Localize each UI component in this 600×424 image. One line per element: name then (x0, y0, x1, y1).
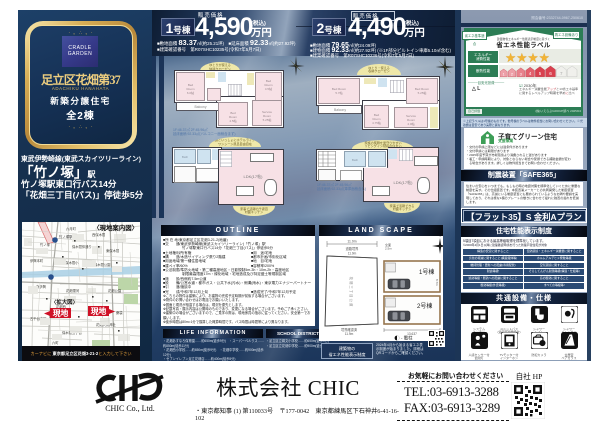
svg-text:現地: 現地 (91, 306, 107, 316)
svg-text:〈現地案内図〉: 〈現地案内図〉 (93, 223, 138, 232)
svg-text:桑袋: 桑袋 (116, 310, 123, 315)
svg-text:花畑公園: 花畑公園 (108, 288, 122, 293)
svg-text:11.9m: 11.9m (347, 240, 356, 244)
svg-text:現地: 現地 (53, 308, 69, 318)
svg-text:道路境界: 道路境界 (346, 246, 360, 251)
svg-text:11.9m: 11.9m (345, 332, 354, 336)
svg-text:花畑三丁目公道: 花畑三丁目公道 (349, 277, 354, 308)
svg-text:2.5m: 2.5m (385, 247, 392, 251)
svg-text:N: N (439, 236, 442, 238)
svg-text:2号棟: 2号棟 (417, 302, 432, 310)
svg-text:〈拡大図〉: 〈拡大図〉 (51, 298, 78, 306)
svg-text:西保木間: 西保木間 (92, 232, 106, 237)
svg-text:11.9m: 11.9m (348, 251, 357, 255)
svg-text:8.7m: 8.7m (435, 279, 439, 286)
svg-text:- 電柱: - 電柱 (401, 335, 413, 341)
svg-text:花畑運河: 花畑運河 (66, 288, 80, 293)
svg-text:保木間仲通り: 保木間仲通り (72, 244, 92, 249)
svg-text:伊興本町: 伊興本町 (30, 258, 44, 263)
svg-text:1: 1 (503, 73, 505, 77)
svg-text:保木間公園: 保木間公園 (94, 262, 111, 267)
svg-text:1号棟: 1号棟 (419, 268, 434, 276)
svg-text:6: 6 (549, 71, 552, 76)
svg-text:2: 2 (511, 72, 513, 76)
svg-text:六町: 六町 (52, 340, 59, 345)
svg-text:7: 7 (560, 71, 563, 76)
svg-text:六月町: 六月町 (66, 226, 77, 231)
